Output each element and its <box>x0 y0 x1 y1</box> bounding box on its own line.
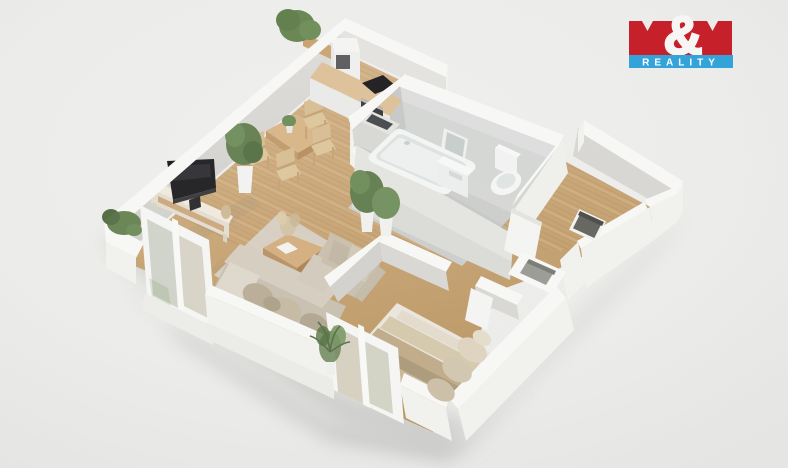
svg-text:REALITY: REALITY <box>642 58 720 69</box>
